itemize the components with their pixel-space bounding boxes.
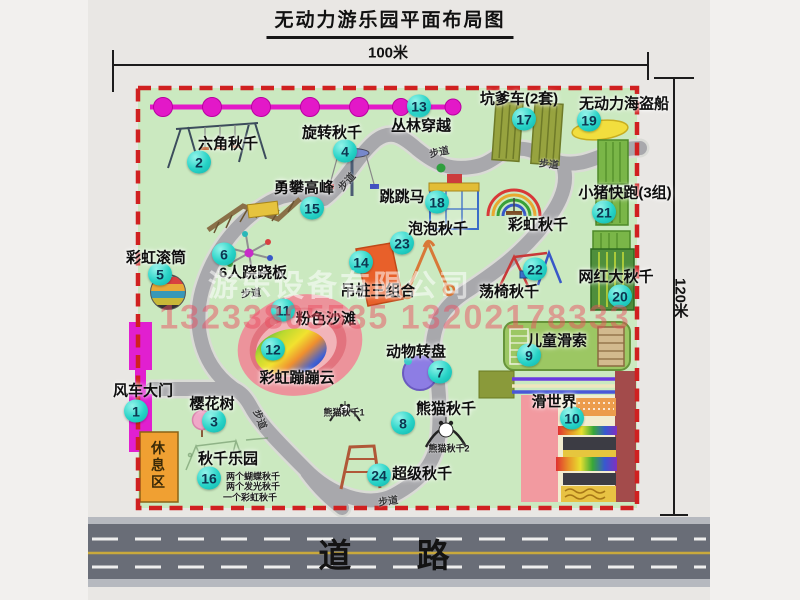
rest-area-structure <box>140 432 178 502</box>
rainbow-roller-structure <box>150 275 186 310</box>
park-map-art <box>0 0 800 600</box>
park-layout-stage: 无动力游乐园平面布局图 100米 120米 休息区 道 路 游乐设备有限公司 1… <box>0 0 800 600</box>
animal-turntable-structure <box>403 356 437 390</box>
big-swing-structure <box>591 249 634 310</box>
road <box>88 517 710 587</box>
kids-zipline-structure <box>504 322 630 370</box>
pig-run-structure <box>593 140 630 258</box>
